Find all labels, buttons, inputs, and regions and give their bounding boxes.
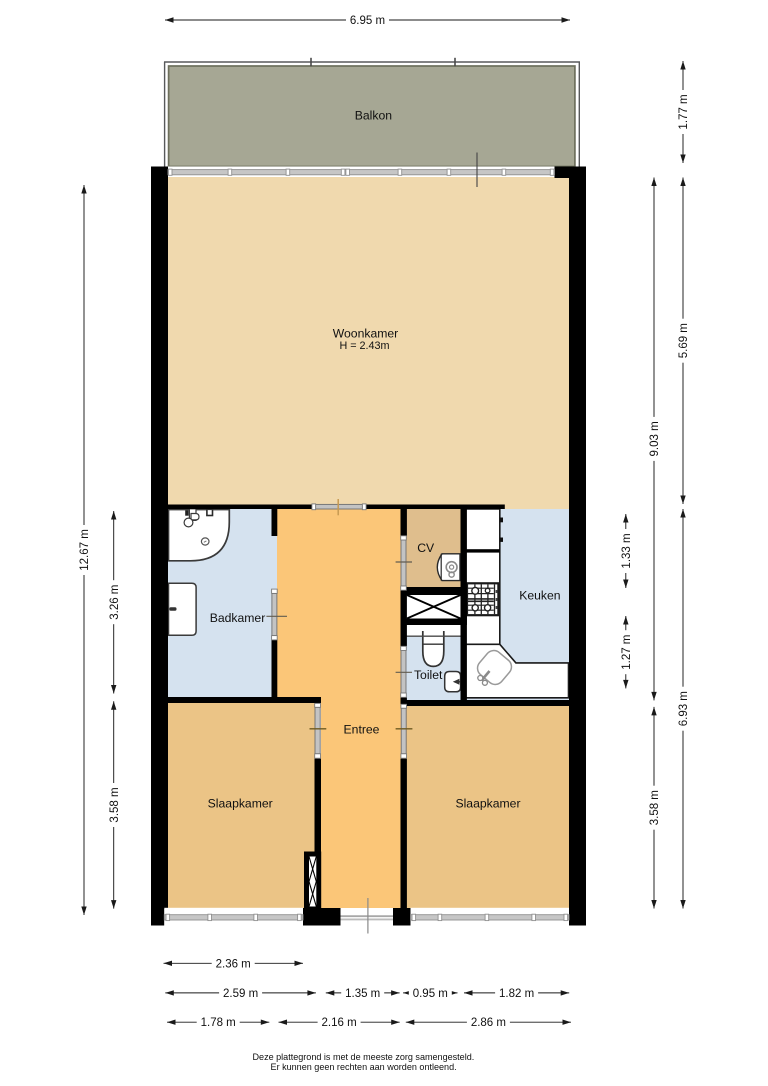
svg-text:6.95 m: 6.95 m (350, 15, 385, 27)
svg-text:Toilet: Toilet (414, 668, 443, 682)
svg-text:Woonkamer: Woonkamer (333, 326, 398, 340)
svg-text:CV: CV (417, 541, 435, 555)
svg-text:Keuken: Keuken (519, 589, 560, 603)
svg-text:1.33 m: 1.33 m (621, 533, 633, 568)
svg-text:Entree: Entree (344, 722, 380, 736)
svg-text:1.35 m: 1.35 m (345, 988, 380, 1000)
svg-text:2.86 m: 2.86 m (471, 1017, 506, 1029)
svg-text:1.27 m: 1.27 m (621, 635, 633, 670)
svg-text:1.82 m: 1.82 m (499, 988, 534, 1000)
svg-text:Badkamer: Badkamer (210, 611, 266, 625)
svg-text:3.58 m: 3.58 m (109, 787, 121, 822)
svg-text:1.78 m: 1.78 m (201, 1017, 236, 1029)
svg-text:2.16 m: 2.16 m (322, 1017, 357, 1029)
svg-text:2.36 m: 2.36 m (216, 958, 251, 970)
svg-text:H = 2.43m: H = 2.43m (339, 340, 389, 352)
svg-text:6.93 m: 6.93 m (678, 691, 690, 726)
svg-text:2.59 m: 2.59 m (223, 988, 258, 1000)
svg-text:0.95 m: 0.95 m (413, 988, 448, 1000)
svg-text:5.69 m: 5.69 m (678, 323, 690, 358)
svg-text:Slaapkamer: Slaapkamer (455, 797, 520, 811)
svg-text:Slaapkamer: Slaapkamer (208, 797, 273, 811)
svg-text:3.58 m: 3.58 m (649, 790, 661, 825)
svg-text:Balkon: Balkon (355, 109, 392, 123)
svg-text:9.03 m: 9.03 m (649, 421, 661, 456)
svg-text:12.67 m: 12.67 m (79, 529, 91, 571)
svg-text:Deze plattegrond is met de mee: Deze plattegrond is met de meeste zorg s… (253, 1052, 475, 1062)
svg-text:Er kunnen geen rechten aan wor: Er kunnen geen rechten aan worden ontlee… (271, 1062, 457, 1072)
svg-text:3.26 m: 3.26 m (109, 585, 121, 620)
svg-text:1.77 m: 1.77 m (678, 94, 690, 129)
